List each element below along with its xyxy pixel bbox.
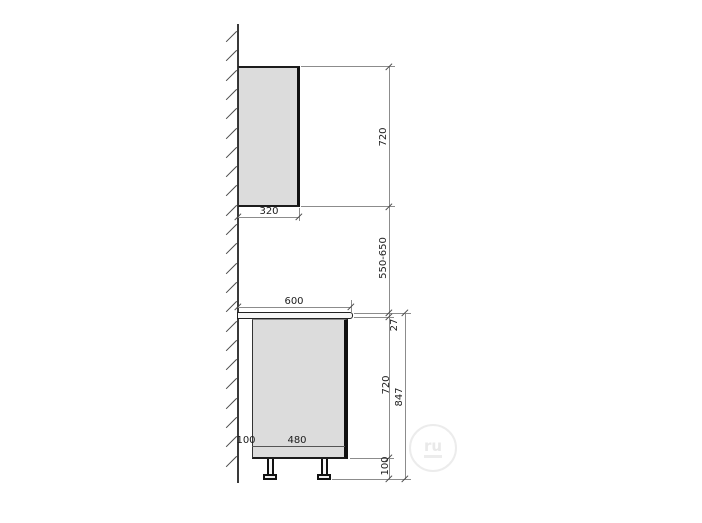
dim-label-wall-back-gap: 100 [236, 436, 255, 446]
dim-label-upper-to-counter-gap: 550-650 [379, 237, 389, 279]
wall-hatch-mark [226, 127, 237, 138]
wall-hatch-mark [226, 166, 237, 177]
countertop [237, 312, 353, 319]
dim-label-base-cabinet-depth: 480 [287, 436, 306, 446]
cabinet-elevation-diagram: ru 720 320 550-650 600 27 720 847 100 10… [0, 0, 702, 523]
wall-hatch-mark [226, 455, 237, 466]
wall-hatch-mark [226, 224, 237, 235]
watermark-ru-badge-text: ru [424, 439, 442, 454]
dim-label-upper-cabinet-height: 720 [379, 127, 389, 146]
ext-line-upper-top [301, 66, 395, 67]
dim-line-320 [238, 217, 300, 218]
cabinet-leg-front-foot [317, 474, 331, 480]
dim-label-countertop-depth: 600 [284, 297, 303, 307]
wall-hatch-mark [226, 359, 237, 370]
cabinet-leg-back [267, 459, 274, 475]
wall-hatch-mark [226, 205, 237, 216]
wall-hatch-mark [226, 417, 237, 428]
dim-line-right-inner [389, 67, 390, 479]
wall-hatch-mark [226, 50, 237, 61]
upper-cabinet [238, 66, 300, 207]
dim-label-leg-height: 100 [381, 456, 391, 475]
wall-hatch-mark [226, 108, 237, 119]
wall-hatch-mark [226, 185, 237, 196]
wall-hatch-mark [226, 378, 237, 389]
wall-hatch-mark [226, 282, 237, 293]
wall-hatch-mark [226, 398, 237, 409]
bottom-panel-line [252, 446, 345, 447]
ext-line-floor [332, 479, 411, 480]
cabinet-leg-front [321, 459, 328, 475]
wall-hatch-mark [226, 320, 237, 331]
wall-hatch-mark [226, 31, 237, 42]
watermark-ru-badge-bar [424, 455, 442, 458]
wall-hatch-mark [226, 243, 237, 254]
dim-line-right-outer [405, 313, 406, 479]
wall-hatch-mark [226, 147, 237, 158]
dim-label-countertop-thickness: 27 [390, 319, 400, 332]
dim-label-total-base-height: 847 [395, 387, 405, 406]
wall-hatch-mark [226, 262, 237, 273]
ext-line-upper-bottom [301, 206, 395, 207]
wall-hatch-mark [226, 89, 237, 100]
watermark-ru-badge: ru [409, 424, 457, 472]
wall-hatch-mark [226, 69, 237, 80]
wall-hatch-mark [226, 340, 237, 351]
dim-line-600 [238, 307, 351, 308]
cabinet-leg-back-foot [263, 474, 277, 480]
dim-label-base-cabinet-height: 720 [382, 375, 392, 394]
dim-label-upper-cabinet-depth: 320 [259, 207, 278, 217]
